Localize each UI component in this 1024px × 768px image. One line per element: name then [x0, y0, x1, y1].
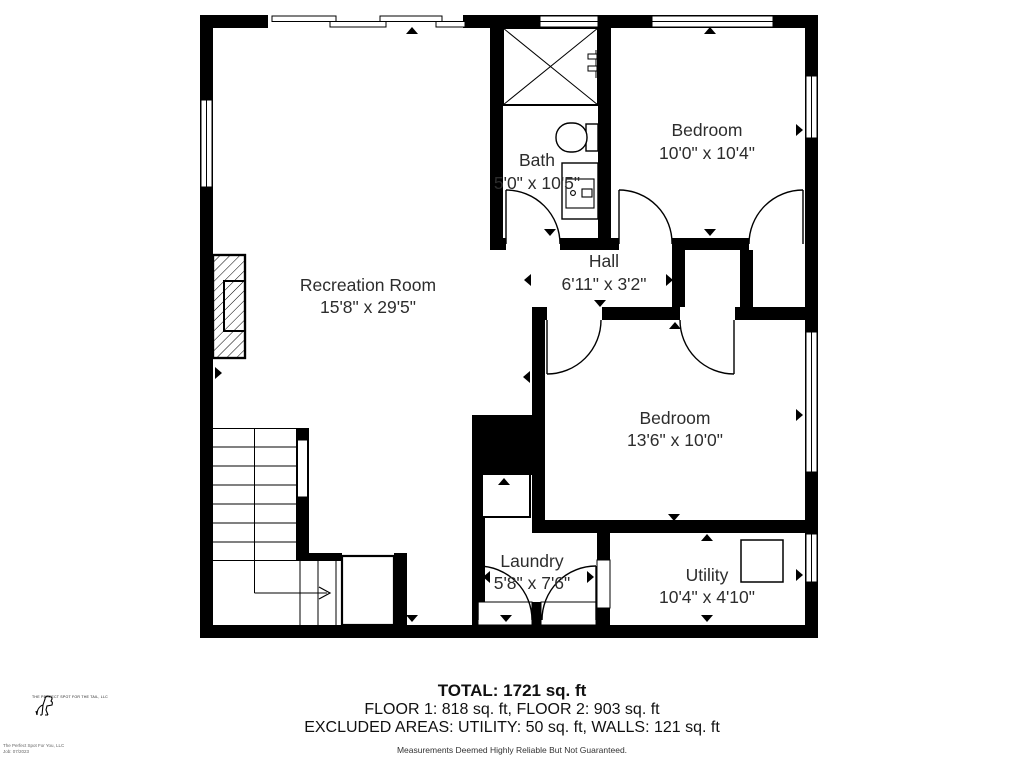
windows [201, 15, 817, 625]
hall-dims: 6'11" x 3'2" [562, 274, 647, 294]
bedroom2-name: Bedroom [639, 408, 710, 428]
hall-name: Hall [589, 251, 619, 271]
floor-areas-text: FLOOR 1: 818 sq. ft, FLOOR 2: 903 sq. ft [0, 701, 1024, 719]
room-label-bedroom1: Bedroom 10'0" x 10'4" [659, 120, 755, 163]
total-area-text: TOTAL: 1721 sq. ft [0, 681, 1024, 701]
utility-dims: 10'4" x 4'10" [659, 587, 755, 607]
toilet-icon [556, 123, 598, 152]
company-logo: THE PERFECT SPOT FOR THE TAIL, LLC [32, 694, 100, 699]
fireplace-icon [213, 255, 245, 358]
bath-door [506, 190, 560, 244]
footnote-line-2: Job: 07/2023 [3, 749, 64, 755]
laundry-utility-opening [597, 560, 610, 608]
shower-icon [503, 28, 598, 105]
bedroom1-dims: 10'0" x 10'4" [659, 143, 755, 163]
bedroom1-door-left [619, 190, 672, 244]
dog-icon [32, 694, 58, 716]
room-label-bedroom2: Bedroom 13'6" x 10'0" [627, 408, 723, 450]
bedroom2-dims: 13'6" x 10'0" [627, 430, 723, 450]
laundry-doorway-right [541, 602, 596, 625]
bedroom1-door-right [749, 190, 803, 244]
water-heater-icon [741, 540, 783, 582]
room-label-recreation: Recreation Room 15'8" x 29'5" [300, 275, 436, 317]
walls [200, 15, 818, 638]
window-right-bedroom1 [806, 76, 817, 138]
bath-dims: 5'0" x 10'5" [494, 173, 580, 193]
bedroom2-door-left [547, 320, 601, 374]
room-label-hall: Hall 6'11" x 3'2" [562, 251, 647, 294]
footnote-line-1: The Perfect Spot For You, LLC [3, 743, 64, 749]
floor-plan-page: Recreation Room 15'8" x 29'5" Bath 5'0" … [0, 0, 1024, 768]
floor-plan-drawing: Recreation Room 15'8" x 29'5" Bath 5'0" … [0, 0, 1024, 768]
laundry-dims: 5'8" x 7'6" [494, 573, 571, 593]
area-summary: TOTAL: 1721 sq. ft FLOOR 1: 818 sq. ft, … [0, 681, 1024, 755]
stair-wall-niche [298, 440, 308, 497]
laundry-name: Laundry [500, 551, 563, 571]
recreation-room-dims: 15'8" x 29'5" [320, 297, 416, 317]
window-left-recreation [201, 100, 212, 187]
bedroom2-door-right [680, 320, 734, 374]
window-top-bedroom1 [652, 16, 773, 27]
under-stair-closet [342, 556, 394, 625]
window-right-utility [806, 534, 817, 582]
room-labels: Recreation Room 15'8" x 29'5" Bath 5'0" … [300, 120, 755, 607]
utility-name: Utility [686, 565, 729, 585]
disclaimer-text: Measurements Deemed Highly Reliable But … [0, 745, 1024, 755]
bath-name: Bath [519, 150, 555, 170]
window-top-bath [540, 16, 598, 27]
corner-footnote: The Perfect Spot For You, LLC Job: 07/20… [3, 743, 64, 754]
recreation-room-name: Recreation Room [300, 275, 436, 295]
laundry-doorway-left [478, 602, 532, 625]
bedroom1-name: Bedroom [671, 120, 742, 140]
room-label-laundry: Laundry 5'8" x 7'6" [494, 551, 571, 593]
window-right-bedroom2 [806, 332, 817, 472]
excluded-areas-text: EXCLUDED AREAS: UTILITY: 50 sq. ft, WALL… [0, 719, 1024, 737]
